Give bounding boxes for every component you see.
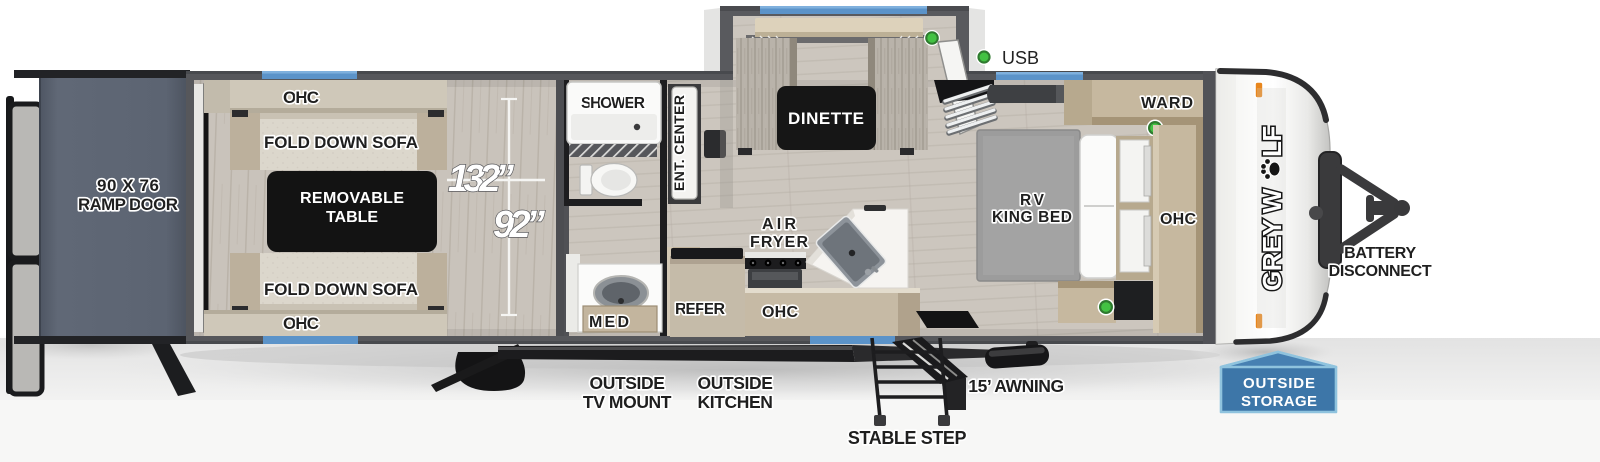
svg-text:90 X 76: 90 X 76 xyxy=(97,176,159,195)
svg-text:REMOVABLE: REMOVABLE xyxy=(300,190,404,207)
svg-text:ENT. CENTER: ENT. CENTER xyxy=(671,95,687,191)
svg-text:KITCHEN: KITCHEN xyxy=(698,392,773,412)
svg-text:REFER: REFER xyxy=(675,301,725,318)
svg-text:SHOWER: SHOWER xyxy=(581,95,645,112)
svg-text:DISCONNECT: DISCONNECT xyxy=(1329,263,1432,280)
svg-text:OHC: OHC xyxy=(283,314,319,333)
svg-text:LF: LF xyxy=(1257,126,1287,157)
svg-text:KING BED: KING BED xyxy=(992,209,1072,226)
svg-text:FOLD DOWN SOFA: FOLD DOWN SOFA xyxy=(264,133,418,152)
svg-text:STORAGE: STORAGE xyxy=(1241,393,1317,410)
svg-text:TV MOUNT: TV MOUNT xyxy=(583,392,672,412)
svg-text:OUTSIDE: OUTSIDE xyxy=(1243,375,1315,392)
svg-text:STABLE STEP: STABLE STEP xyxy=(848,428,967,448)
svg-text:OUTSIDE: OUTSIDE xyxy=(590,373,665,393)
svg-text:OHC: OHC xyxy=(283,88,319,107)
svg-text:OUTSIDE: OUTSIDE xyxy=(698,373,773,393)
svg-text:USB: USB xyxy=(1002,48,1039,68)
svg-text:OHC: OHC xyxy=(1160,211,1196,228)
svg-text:WARD: WARD xyxy=(1141,95,1193,112)
svg-text:132”: 132” xyxy=(448,158,514,200)
svg-text:FRYER: FRYER xyxy=(750,234,808,251)
svg-text:BATTERY: BATTERY xyxy=(1344,245,1416,262)
svg-text:GREY W: GREY W xyxy=(1257,188,1287,291)
svg-text:TABLE: TABLE xyxy=(326,209,378,226)
svg-text:15’ AWNING: 15’ AWNING xyxy=(968,376,1064,396)
svg-text:92”: 92” xyxy=(493,204,545,246)
svg-text:OHC: OHC xyxy=(762,304,798,321)
svg-text:FOLD DOWN SOFA: FOLD DOWN SOFA xyxy=(264,280,418,299)
svg-text:AIR: AIR xyxy=(762,216,796,233)
svg-text:DINETTE: DINETTE xyxy=(788,109,864,128)
svg-text:MED: MED xyxy=(589,314,629,331)
svg-text:RAMP DOOR: RAMP DOOR xyxy=(78,195,178,214)
